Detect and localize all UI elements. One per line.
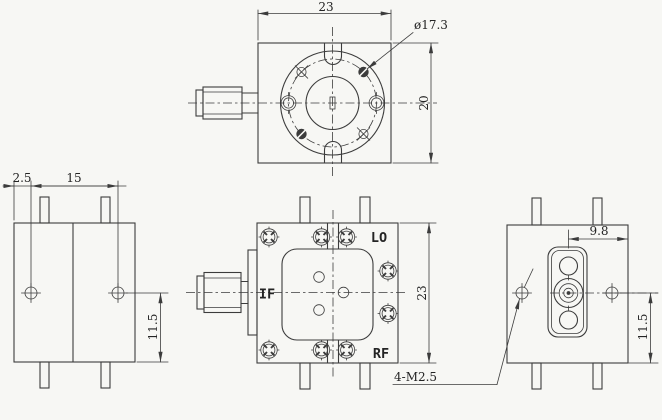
thread-note-text: 4-M2.5	[394, 370, 437, 384]
right-view: 9.8 11.5	[507, 198, 658, 389]
dim-front-height: 23	[400, 223, 436, 363]
pin	[360, 363, 370, 389]
dim-pin-offset-text: 2.5	[12, 171, 31, 185]
pin	[40, 362, 49, 388]
pin	[101, 362, 110, 388]
flange-screw-lower-left	[296, 129, 306, 139]
top-view: 23 ø17.3 20	[188, 0, 448, 179]
dim-pin-offset-pitch: 2.5 15	[3, 171, 126, 286]
port-label-if: IF	[259, 287, 275, 303]
cavity-outline	[282, 249, 373, 340]
dim-flange-diameter-text: ø17.3	[414, 18, 448, 32]
dim-top-width-text: 23	[318, 0, 333, 14]
left-view-body	[14, 197, 135, 388]
engineering-drawing-page: 23 ø17.3 20 2.5 15	[0, 0, 662, 420]
pin	[532, 198, 541, 225]
dim-connector-offset-text: 9.8	[589, 224, 608, 238]
flange-screw-lower-right	[357, 128, 369, 140]
mixer-outline-drawing: 23 ø17.3 20 2.5 15	[0, 0, 662, 420]
front-view: LO IF RF 23 4-M2.5	[186, 197, 533, 389]
pin	[101, 197, 110, 223]
tapped-hole-left	[513, 284, 532, 303]
right-view-connector-recess	[548, 247, 587, 337]
dim-right-height: 11.5	[620, 293, 658, 363]
pin	[40, 197, 49, 223]
flange-screw-upper-left	[295, 66, 307, 78]
pin	[300, 363, 310, 389]
tapped-hole-right	[603, 284, 622, 303]
dim-top-depth-text: 20	[417, 95, 431, 110]
pin	[532, 363, 541, 389]
pin	[593, 198, 602, 225]
dim-right-height-text: 11.5	[636, 314, 650, 341]
dim-connector-offset: 9.8	[569, 224, 628, 248]
front-view-cavity-holes	[314, 272, 349, 316]
left-view: 2.5 15 11.5	[3, 171, 168, 388]
pin	[593, 363, 602, 389]
port-label-lo: LO	[371, 230, 387, 246]
pin	[360, 197, 370, 223]
dim-front-height-text: 23	[415, 285, 429, 300]
dim-left-height-text: 11.5	[146, 314, 160, 341]
top-view-centerlines	[188, 27, 437, 179]
pin	[300, 197, 310, 223]
port-label-rf: RF	[373, 346, 389, 362]
dim-top-width: 23	[258, 0, 391, 40]
flange-screw-upper-right	[358, 67, 368, 77]
dim-left-height: 11.5	[126, 293, 168, 362]
thread-note: 4-M2.5	[393, 269, 533, 385]
dim-pin-pitch-text: 15	[66, 171, 81, 185]
